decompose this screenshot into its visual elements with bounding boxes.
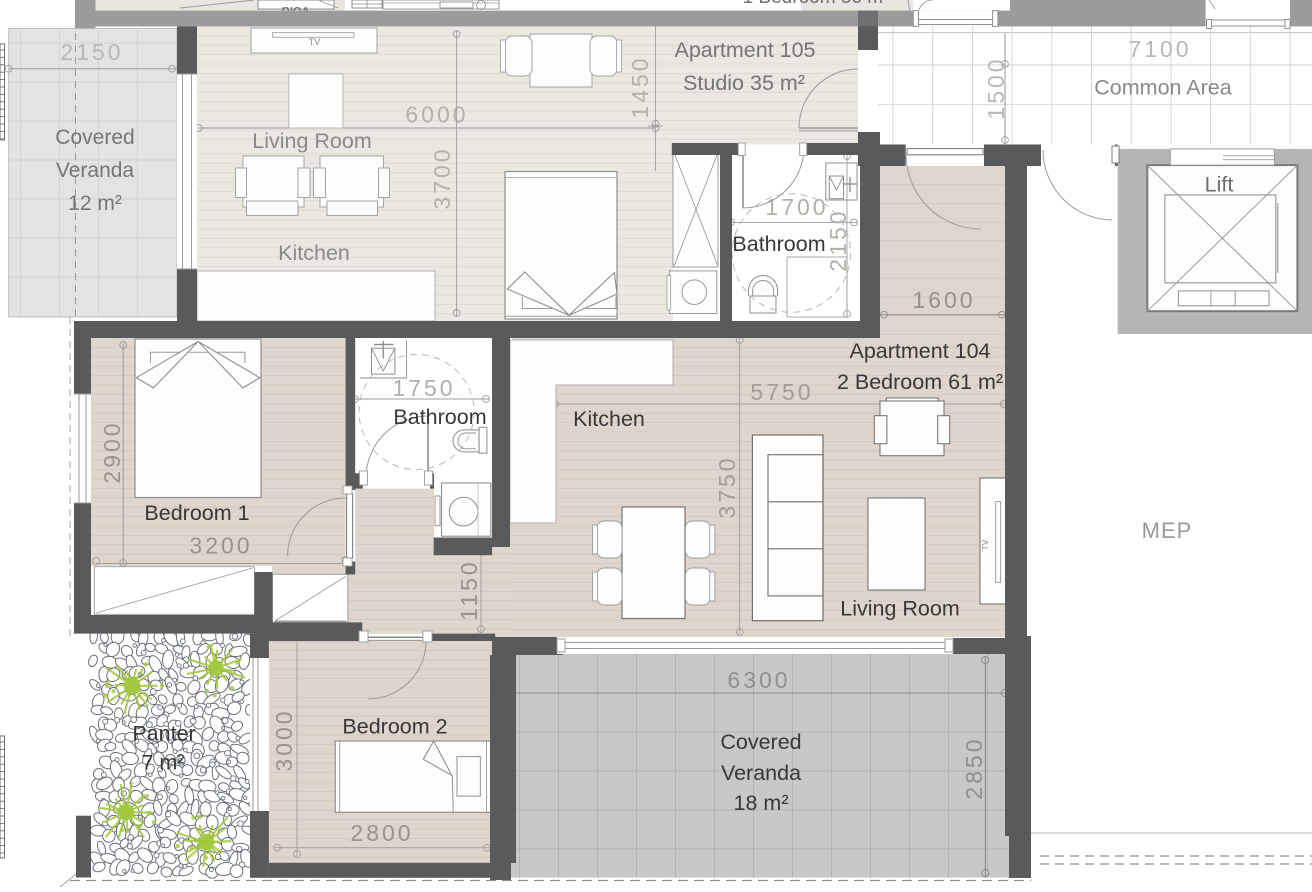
svg-text:2900: 2900	[99, 420, 125, 483]
svg-text:Apartment 104: Apartment 104	[849, 339, 990, 363]
svg-text:7 m²: 7 m²	[142, 751, 185, 775]
svg-text:Covered: Covered	[55, 126, 134, 149]
svg-text:Veranda: Veranda	[721, 761, 801, 785]
svg-text:1750: 1750	[392, 375, 455, 401]
svg-text:Bathroom: Bathroom	[393, 405, 486, 429]
svg-text:MEP: MEP	[1142, 518, 1193, 543]
svg-text:1500: 1500	[983, 56, 1009, 119]
svg-text:2 Bedroom 61 m²: 2 Bedroom 61 m²	[837, 370, 1003, 394]
svg-text:TV: TV	[980, 539, 990, 550]
svg-text:Bathroom: Bathroom	[732, 232, 825, 256]
svg-text:2850: 2850	[961, 736, 987, 799]
svg-text:3200: 3200	[189, 533, 252, 559]
svg-text:Studio 35 m²: Studio 35 m²	[683, 71, 805, 95]
svg-text:1 Bedroom 56 m²: 1 Bedroom 56 m²	[743, 0, 890, 8]
svg-text:1150: 1150	[456, 559, 482, 620]
svg-text:3700: 3700	[429, 146, 455, 209]
svg-text:2150: 2150	[60, 39, 123, 65]
svg-text:Kitchen: Kitchen	[573, 407, 645, 431]
svg-text:3000: 3000	[271, 708, 297, 771]
svg-text:Covered: Covered	[720, 730, 801, 754]
svg-text:Bedroom 1: Bedroom 1	[144, 501, 249, 525]
svg-text:Kitchen: Kitchen	[278, 241, 350, 265]
svg-text:2800: 2800	[350, 820, 413, 846]
svg-text:1450: 1450	[627, 55, 653, 118]
svg-text:Apartment 105: Apartment 105	[674, 38, 815, 62]
svg-text:Living Room: Living Room	[840, 597, 960, 621]
svg-text:Panter: Panter	[132, 722, 195, 746]
svg-text:3750: 3750	[714, 455, 740, 518]
svg-text:TV: TV	[309, 37, 321, 47]
svg-text:6300: 6300	[727, 667, 790, 693]
svg-text:5750: 5750	[750, 379, 813, 405]
svg-text:6000: 6000	[405, 102, 468, 128]
svg-text:Lift: Lift	[1205, 173, 1234, 197]
svg-text:1700: 1700	[765, 194, 828, 220]
svg-text:Veranda: Veranda	[56, 159, 135, 182]
svg-text:Living Room: Living Room	[252, 129, 372, 153]
svg-text:Bedroom 2: Bedroom 2	[342, 715, 447, 739]
svg-text:1600: 1600	[912, 287, 975, 313]
svg-text:2150: 2150	[825, 208, 851, 271]
svg-text:7100: 7100	[1128, 36, 1191, 62]
svg-text:12 m²: 12 m²	[68, 192, 122, 215]
svg-text:18 m²: 18 m²	[734, 791, 789, 815]
svg-text:Common Area: Common Area	[1094, 76, 1231, 100]
